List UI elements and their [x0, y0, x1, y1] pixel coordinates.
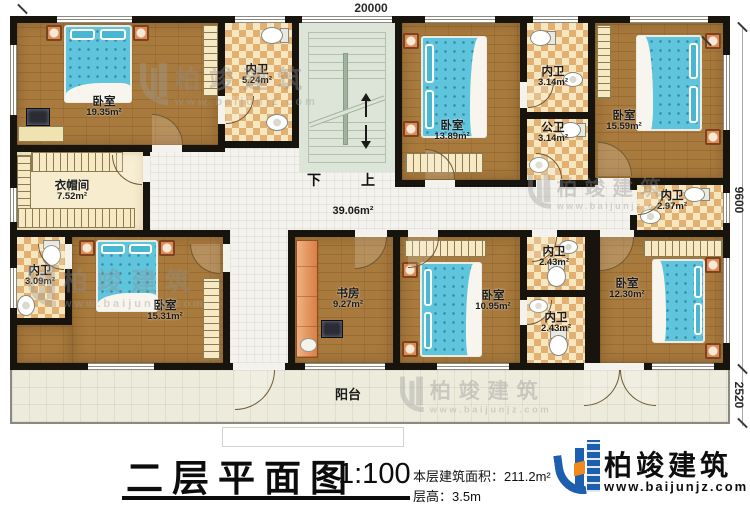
monitor-icon [321, 320, 343, 338]
bed-icon [636, 35, 702, 131]
bedroom-bl-floor-extension [17, 325, 72, 363]
door-opening [536, 180, 560, 187]
staircase [299, 23, 395, 172]
brand-name: 柏竣建筑 [604, 444, 732, 484]
door-balcony-right-b [620, 370, 656, 406]
door-opening [520, 300, 527, 325]
wall [588, 16, 595, 187]
window [723, 193, 730, 223]
door-opening [520, 82, 527, 108]
door-opening [233, 363, 285, 370]
bed-icon [652, 259, 705, 343]
sink-icon [563, 72, 583, 87]
window [302, 16, 392, 23]
window [425, 16, 495, 23]
bed-icon [64, 25, 132, 103]
door-opening [408, 230, 438, 237]
window [10, 45, 17, 115]
chair-icon [300, 338, 317, 352]
brand-url: www.baijunjz.com [604, 479, 748, 494]
stand-icon [705, 343, 721, 359]
sink-icon [266, 114, 288, 131]
dimension-height-main: 9600 [732, 180, 746, 220]
door-opening [355, 230, 387, 237]
hatch-h-icon [31, 152, 123, 172]
toilet-h-icon [530, 30, 556, 44]
window [235, 16, 285, 23]
wall [218, 16, 225, 152]
dimension-height-balcony: 2520 [732, 375, 746, 415]
toilet-h-icon [684, 187, 710, 200]
stand-icon [403, 33, 419, 49]
logo-tower [587, 440, 600, 492]
window [723, 55, 730, 130]
hatch-v-icon [203, 25, 218, 97]
door-opening [584, 363, 644, 370]
stand-icon [705, 257, 721, 273]
sink-icon [17, 295, 35, 316]
stairs-down-label: 下 [302, 170, 326, 190]
wall [395, 16, 402, 187]
window [437, 363, 509, 370]
hatch-v-icon [597, 25, 611, 99]
corridor-floor [230, 237, 288, 363]
wall [527, 290, 585, 297]
bed-icon [420, 262, 482, 357]
door-opening [598, 178, 630, 185]
wall [10, 318, 72, 325]
window [630, 16, 708, 23]
wall [527, 112, 588, 119]
dimension-width: 20000 [335, 1, 407, 15]
door-opening [143, 156, 150, 182]
bed-icon [421, 36, 487, 138]
window [10, 188, 17, 222]
wall [10, 230, 230, 237]
door-opening [223, 244, 230, 272]
hatch-h-icon [17, 208, 135, 228]
window [88, 363, 154, 370]
door-balcony-right-a [584, 370, 620, 406]
stand-icon [133, 25, 149, 41]
stairs-rail [343, 53, 348, 145]
stairs-arrow-down-icon [365, 125, 367, 147]
logo-orange-block [574, 461, 585, 477]
wall [393, 230, 400, 370]
bed-icon [96, 240, 158, 312]
wall [400, 230, 730, 237]
window [305, 363, 385, 370]
wall [225, 141, 299, 148]
sink-icon [559, 240, 578, 254]
window [57, 16, 132, 23]
toilet-v-icon [547, 261, 564, 287]
floor-area-note: 本层建筑面积：211.2m² [413, 466, 551, 485]
hatch-h-icon [643, 240, 723, 257]
window [723, 258, 730, 343]
desk-icon [18, 126, 64, 142]
stand-icon [46, 25, 62, 41]
wall [10, 145, 225, 152]
toilet-h-icon [261, 27, 289, 42]
door-opening [532, 230, 557, 237]
door-opening [425, 180, 455, 187]
balcony-label: 阳台 [318, 384, 378, 403]
door-opening [65, 244, 72, 269]
wall [395, 180, 527, 187]
stand-icon [159, 240, 175, 256]
stand-icon [403, 121, 419, 137]
window [10, 268, 17, 308]
toilet-v-icon [549, 330, 566, 356]
plan-scale: 1:100 [338, 458, 411, 491]
stand-icon [79, 240, 95, 256]
door-opening [630, 190, 637, 215]
window [652, 363, 714, 370]
door-opening [600, 230, 634, 237]
door-opening [152, 145, 182, 152]
hatch-v-icon [203, 278, 220, 360]
stairs-up-label: 上 [356, 170, 380, 190]
door-opening [218, 96, 225, 124]
wall [585, 230, 600, 370]
stand-icon [705, 129, 721, 145]
plan-title: 二层平面图 [126, 448, 356, 502]
monitor-icon [26, 108, 50, 126]
window [533, 16, 578, 23]
brand-logo-icon [556, 438, 602, 498]
stairs-arrow-up-icon [365, 95, 367, 117]
stand-icon [402, 341, 418, 357]
floor-height-note: 层高：3.5m [413, 486, 481, 505]
toilet-h-icon [560, 122, 586, 136]
hall-area-label: 39.06m² [318, 205, 388, 217]
door-balcony-left [235, 370, 275, 410]
wall [288, 230, 295, 370]
title-underline [122, 496, 410, 500]
floor-plan-page: 卧室19.35m²内卫5.24m²卧室13.89m²内卫3.14m²公卫3.14… [0, 0, 750, 509]
wall [292, 16, 299, 147]
